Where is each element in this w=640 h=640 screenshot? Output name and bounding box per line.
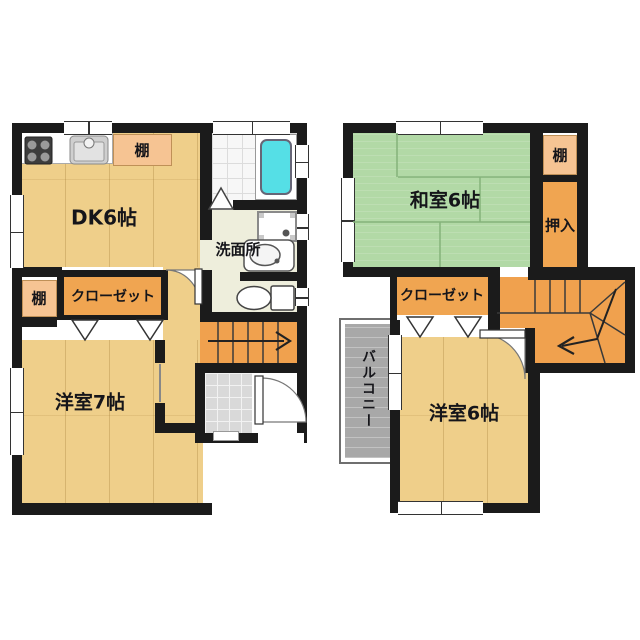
label-dk: DK6帖: [71, 202, 137, 231]
label-balcony: バルコニー: [358, 349, 378, 429]
toilet-icon: [237, 286, 294, 310]
label-shelf-top-1f: 棚: [134, 140, 149, 161]
label-shelf-side-1f: 棚: [31, 288, 46, 309]
bath-folding-door-icon: [209, 188, 233, 209]
closet-2f-folding-doors: [407, 317, 481, 337]
label-oshiire: 押入: [545, 215, 575, 236]
closet-1f-folding-doors: [72, 320, 163, 340]
label-closet-2f: クローゼット: [400, 285, 484, 305]
kitchen-sink-icon: [70, 136, 108, 164]
door-dk-hall-arc: [166, 269, 202, 304]
stairs-2f-direction-arrow: [559, 289, 616, 354]
label-western7: 洋室7帖: [55, 388, 125, 415]
label-japanese6: 和室6帖: [410, 186, 480, 213]
floor-plan: DK6帖 棚 棚 クローゼット 洗面所 洋室7帖 和室6帖 棚 押入 クローゼッ…: [0, 0, 640, 640]
door-western6-arc: [480, 330, 525, 379]
stairs-1f-treads: [218, 322, 278, 363]
label-washroom: 洗面所: [215, 239, 260, 260]
gas-stove-icon: [25, 137, 52, 164]
entrance-door-arc: [255, 376, 306, 424]
label-closet-1f: クローゼット: [71, 286, 155, 306]
label-shelf-2f: 棚: [552, 145, 567, 166]
washing-machine-icon: [258, 212, 296, 241]
label-western6: 洋室6帖: [429, 399, 499, 426]
line-art-overlay: [0, 0, 640, 640]
